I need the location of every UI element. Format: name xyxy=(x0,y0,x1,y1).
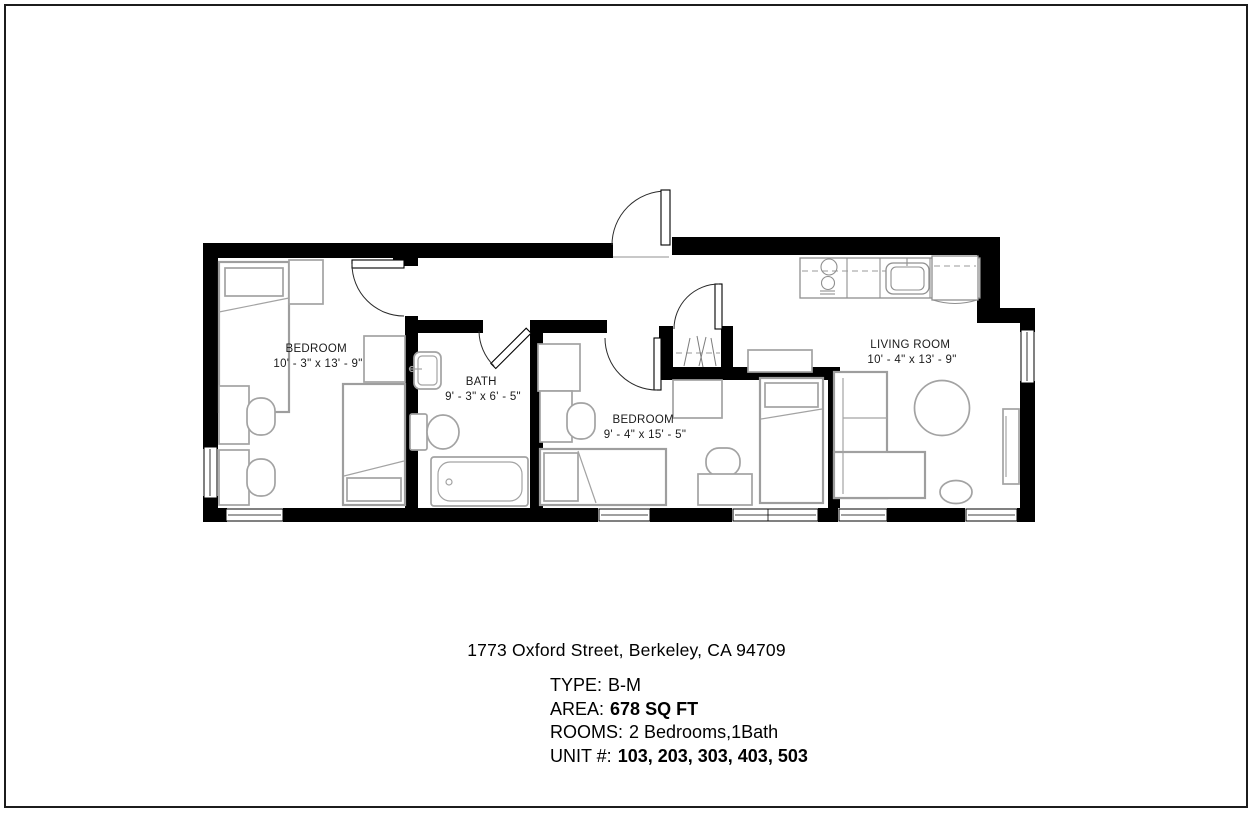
floor-plan-page: BEDROOM 10' - 3" x 13' - 9" BATH 9' - 3"… xyxy=(0,0,1253,813)
unit-specs: TYPE:B-M AREA:678 SQ FT ROOMS:2 Bedrooms… xyxy=(550,674,808,768)
closet-hanger-rod xyxy=(676,336,720,367)
wardrobe xyxy=(364,336,405,382)
window-right-living xyxy=(1021,330,1034,383)
desk-chair xyxy=(567,403,595,439)
dresser xyxy=(673,380,722,418)
kitchen-sink xyxy=(886,258,929,294)
bed xyxy=(343,384,405,505)
desk-chair xyxy=(706,448,740,476)
spec-unit: UNIT #:103, 203, 303, 403, 503 xyxy=(550,745,808,769)
nightstand xyxy=(289,260,323,304)
ottoman xyxy=(940,481,972,504)
refrigerator xyxy=(932,256,978,304)
bath-door xyxy=(479,328,531,368)
desk-chair xyxy=(247,398,275,435)
bath-label: BATH 9' - 3" x 6' - 5" xyxy=(445,376,521,403)
window-bottom-bedroom2-right xyxy=(733,509,818,521)
property-address: 1773 Oxford Street, Berkeley, CA 94709 xyxy=(0,640,1253,661)
spec-area-label: AREA: xyxy=(550,699,604,719)
spec-type-value: B-M xyxy=(608,675,641,695)
bedroom1-door xyxy=(352,260,404,316)
window-bottom-living-left xyxy=(839,509,887,521)
window-bottom-bedroom2-left xyxy=(599,509,650,521)
spec-type: TYPE:B-M xyxy=(550,674,808,698)
window-bottom-living-right xyxy=(966,509,1017,521)
desk xyxy=(219,386,249,444)
bathtub xyxy=(431,457,528,506)
spec-unit-label: UNIT #: xyxy=(550,746,612,766)
bedroom1-furniture xyxy=(219,260,405,505)
toilet xyxy=(410,414,459,450)
spec-type-label: TYPE: xyxy=(550,675,602,695)
bed xyxy=(760,378,823,503)
media-console xyxy=(1003,409,1019,484)
spec-area-value: 678 SQ FT xyxy=(610,699,698,719)
entry-door xyxy=(612,190,670,257)
spec-rooms-label: ROOMS: xyxy=(550,722,623,742)
spec-unit-value: 103, 203, 303, 403, 503 xyxy=(618,746,808,766)
spec-rooms-value: 2 Bedrooms,1Bath xyxy=(629,722,778,742)
desk xyxy=(219,450,249,505)
bed xyxy=(540,449,666,505)
window-bottom-bedroom1 xyxy=(226,509,283,521)
console-shelf xyxy=(748,350,812,372)
sectional-sofa xyxy=(834,372,925,498)
living-room-label: LIVING ROOM 10' - 4" x 13' - 9" xyxy=(867,339,956,366)
living-room-furniture xyxy=(834,372,1019,504)
spec-rooms: ROOMS:2 Bedrooms,1Bath xyxy=(550,721,808,745)
window-left-bedroom1 xyxy=(204,447,217,498)
spec-area: AREA:678 SQ FT xyxy=(550,698,808,722)
desk-chair xyxy=(247,459,275,496)
bath-sink xyxy=(410,352,442,389)
round-table xyxy=(915,381,970,436)
closet-door xyxy=(674,284,722,329)
bedroom2-label: BEDROOM 9' - 4" x 15' - 5" xyxy=(604,414,687,441)
desk xyxy=(698,474,752,505)
bedroom2-door xyxy=(605,338,661,390)
